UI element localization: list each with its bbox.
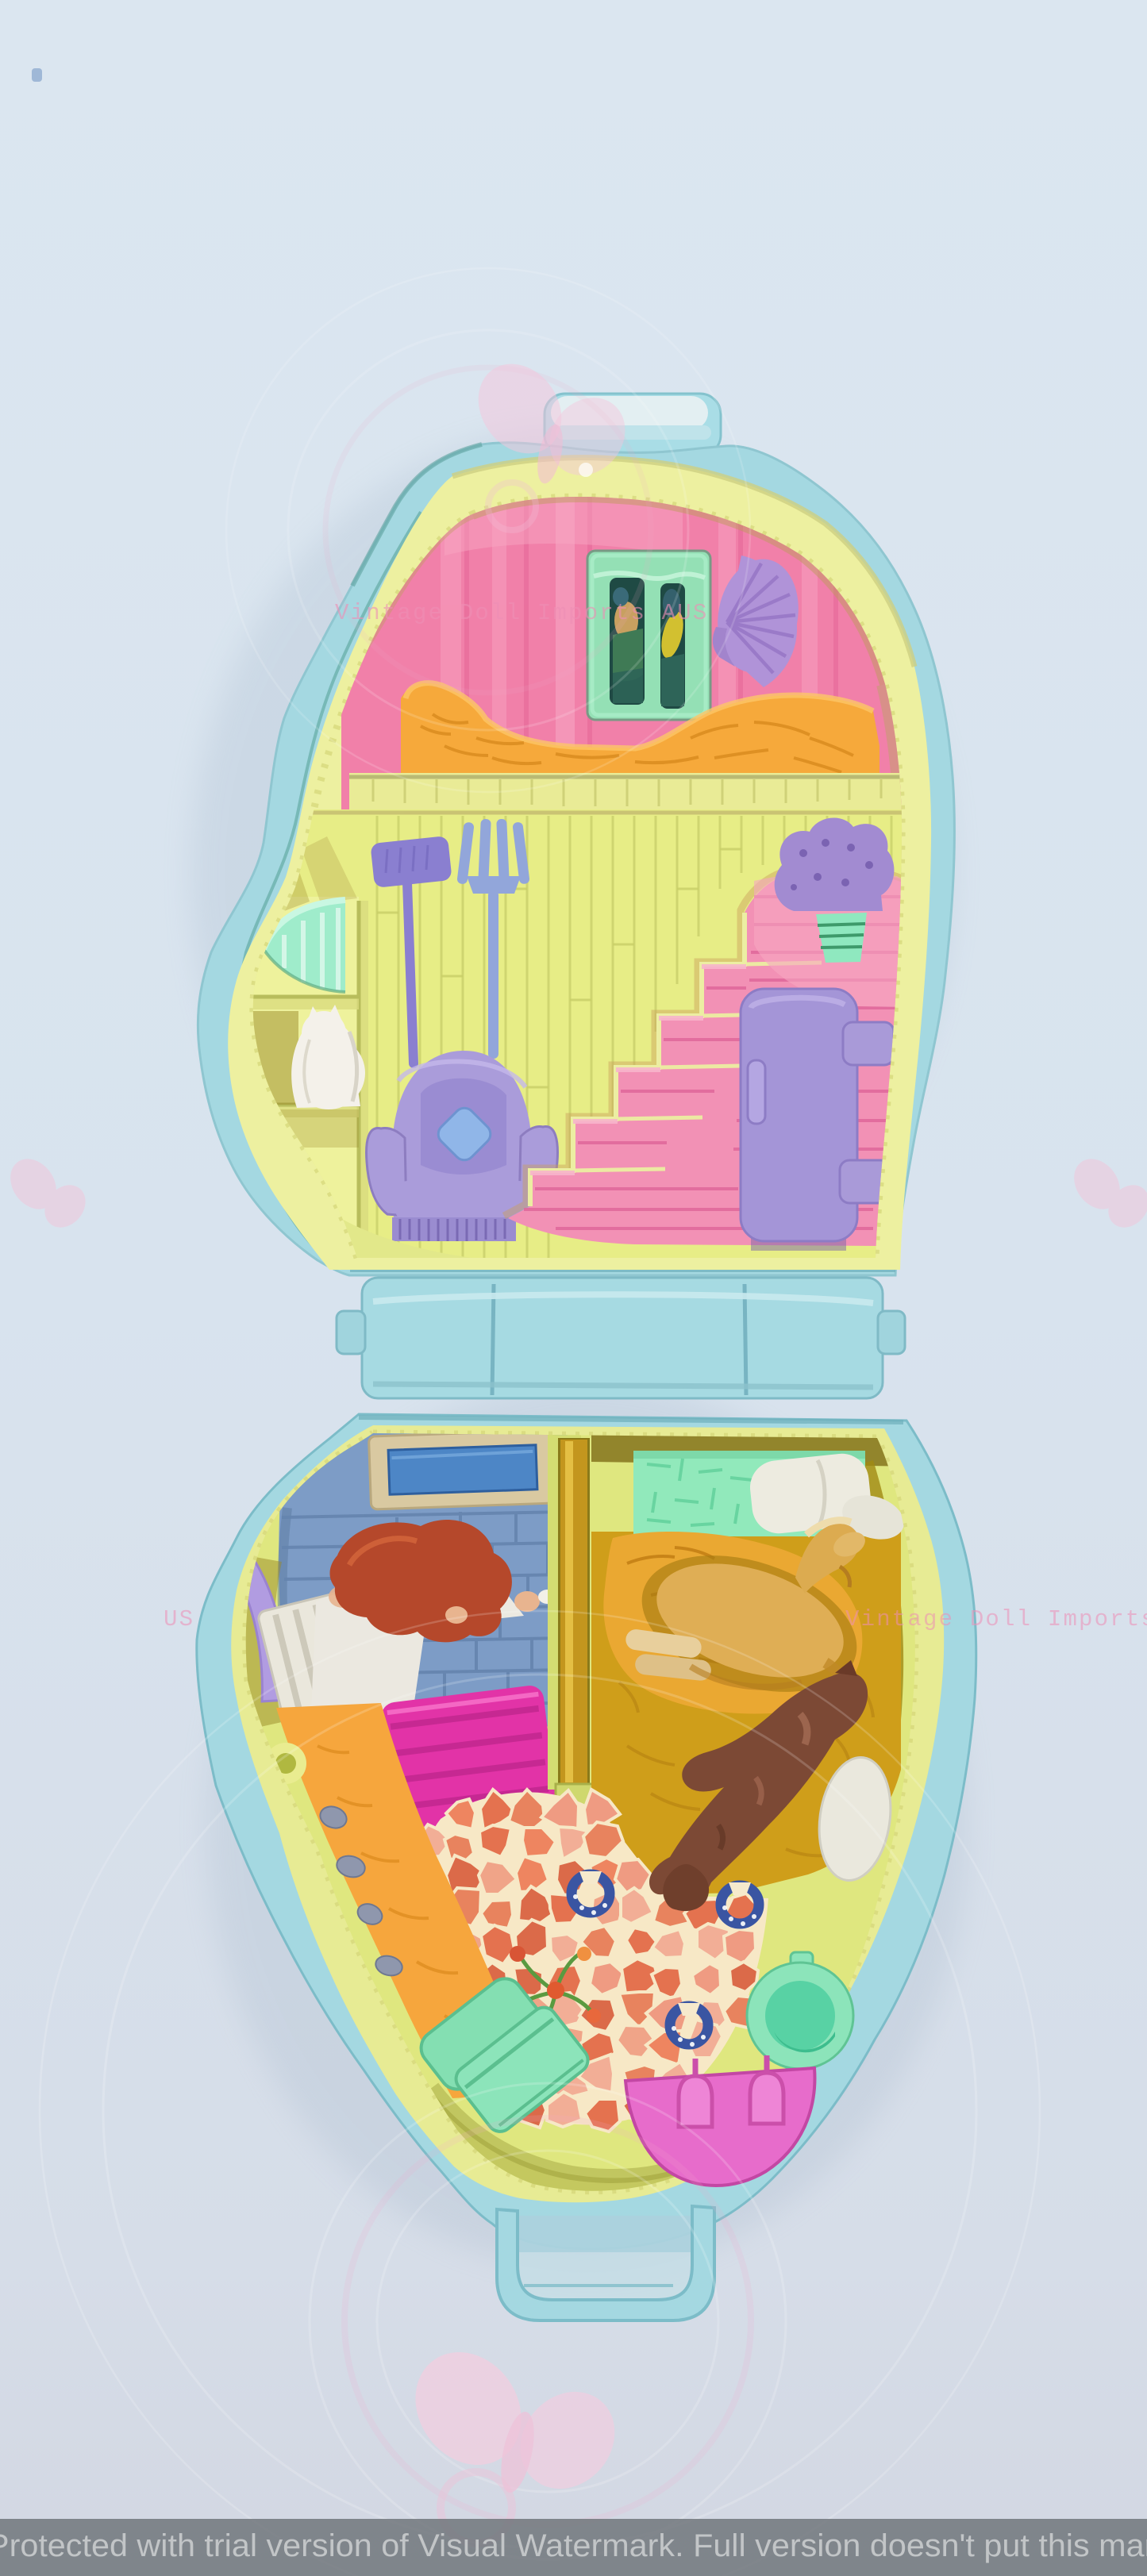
svg-text:US: US (164, 1606, 194, 1632)
svg-text:Protected with trial version o: Protected with trial version of Visual W… (0, 2528, 1147, 2563)
svg-text:Vintage Doll Imports: Vintage Doll Imports (845, 1606, 1147, 1632)
svg-text:Vintage Doll Imports AUS: Vintage Doll Imports AUS (335, 600, 708, 626)
